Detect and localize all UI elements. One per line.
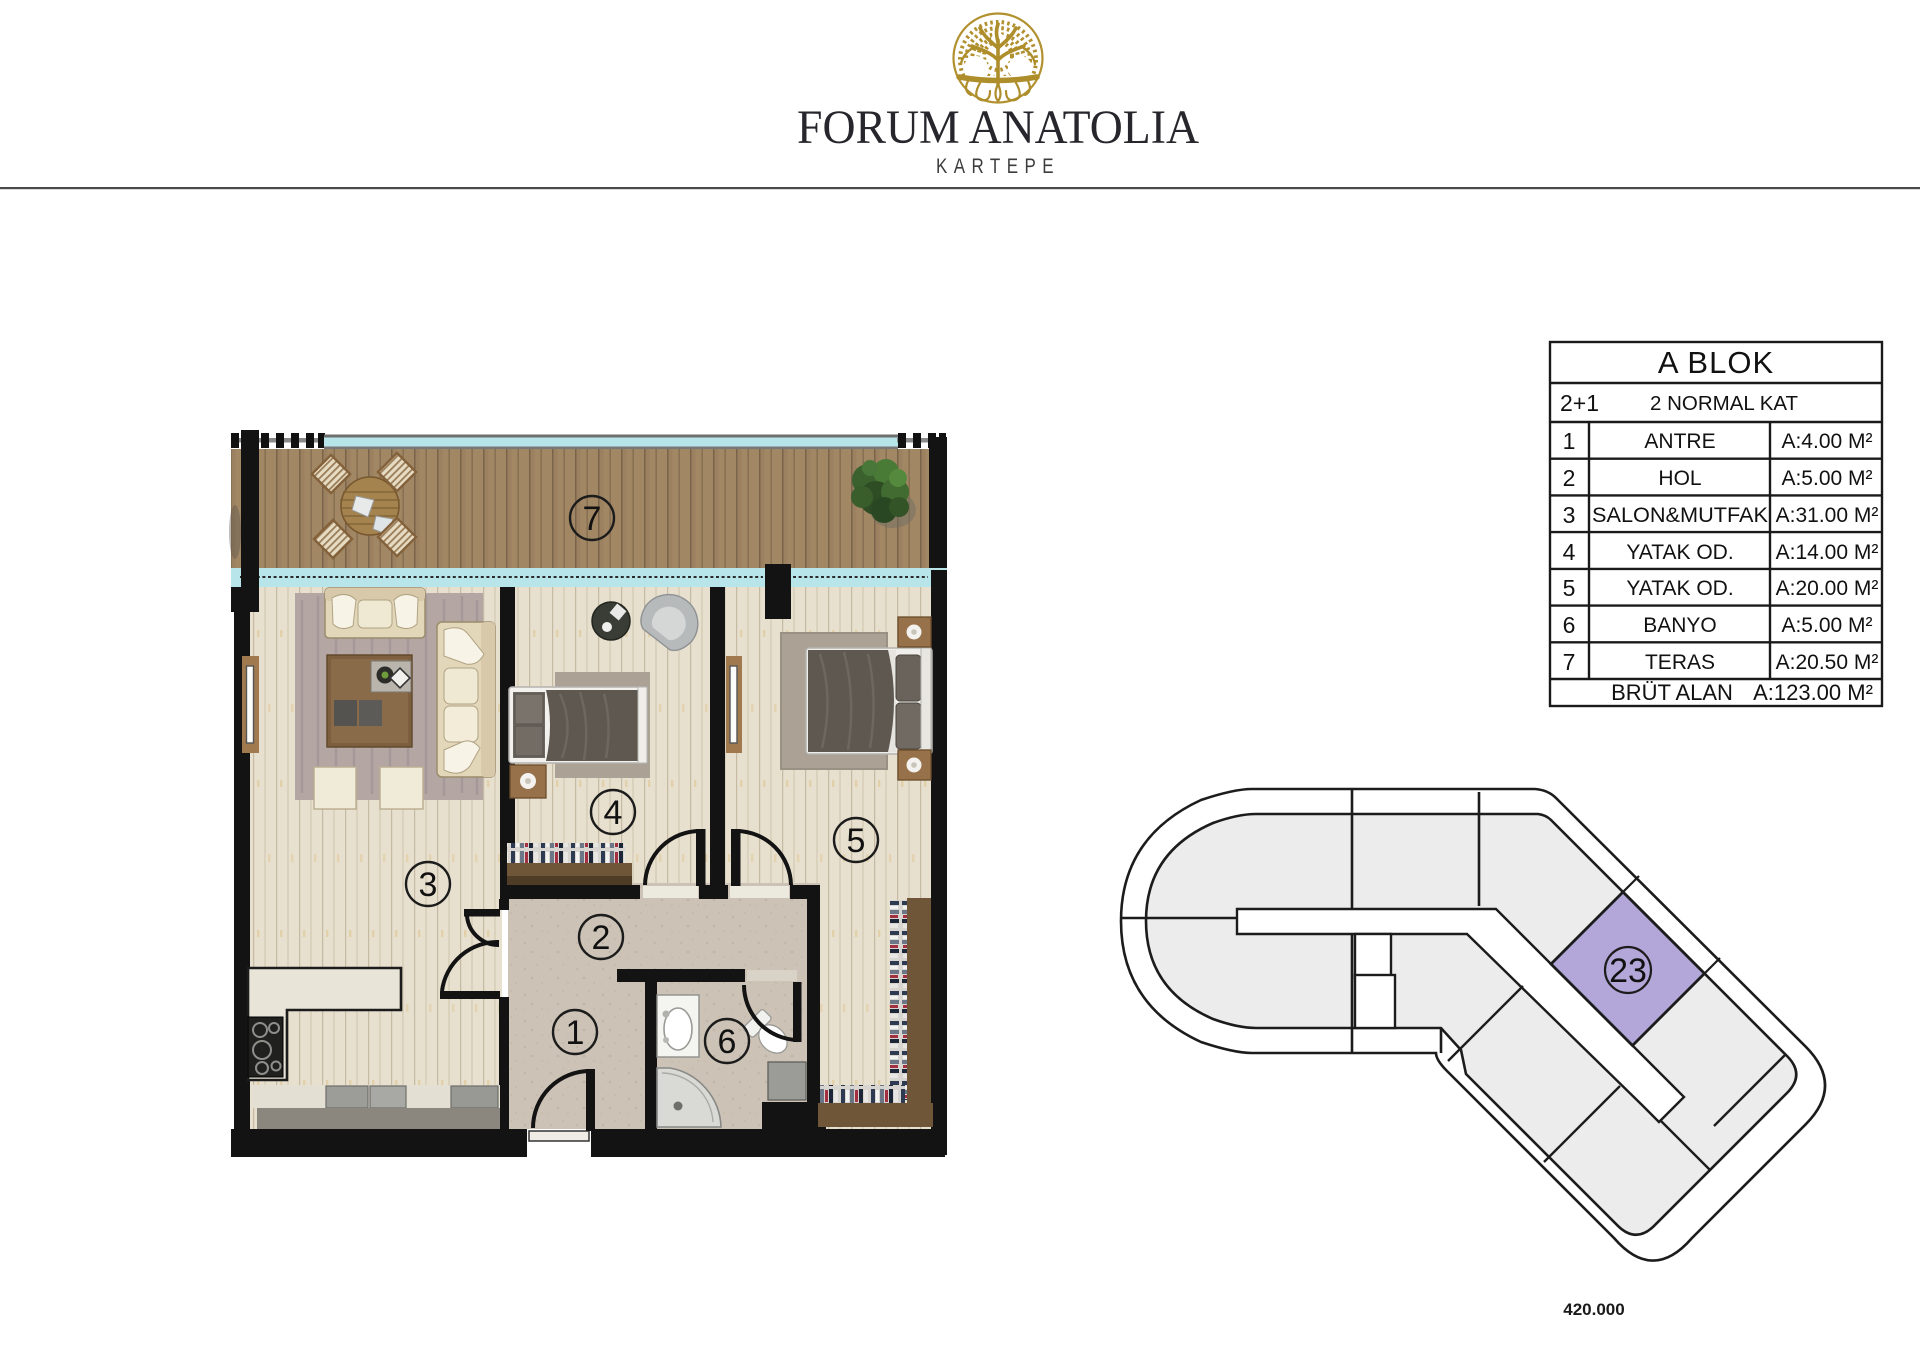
svg-text:TERAS: TERAS	[1645, 651, 1715, 674]
svg-text:5: 5	[847, 822, 866, 860]
svg-text:2: 2	[592, 919, 611, 957]
svg-text:23: 23	[1609, 952, 1647, 990]
svg-text:3: 3	[419, 866, 438, 904]
svg-text:420.000: 420.000	[1563, 1300, 1624, 1319]
svg-text:YATAK OD.: YATAK OD.	[1626, 541, 1733, 564]
svg-text:BRÜT ALAN: BRÜT ALAN	[1611, 680, 1733, 705]
svg-text:A:4.00 M²: A:4.00 M²	[1781, 430, 1872, 453]
svg-text:5: 5	[1563, 575, 1576, 601]
svg-text:A:20.50 M²: A:20.50 M²	[1776, 651, 1879, 674]
svg-text:YATAK OD.: YATAK OD.	[1626, 577, 1733, 600]
svg-text:A:5.00 M²: A:5.00 M²	[1781, 614, 1872, 637]
svg-text:A:5.00 M²: A:5.00 M²	[1781, 467, 1872, 490]
svg-text:FORUM ANATOLIA: FORUM ANATOLIA	[797, 101, 1199, 154]
svg-text:SALON&MUTFAK: SALON&MUTFAK	[1592, 504, 1768, 527]
svg-text:6: 6	[1563, 612, 1576, 638]
svg-text:2 NORMAL KAT: 2 NORMAL KAT	[1650, 392, 1799, 415]
svg-text:2: 2	[1563, 465, 1576, 491]
svg-text:1: 1	[1563, 428, 1576, 454]
svg-text:HOL: HOL	[1658, 467, 1701, 490]
svg-text:3: 3	[1563, 502, 1576, 528]
svg-text:4: 4	[604, 794, 623, 832]
svg-text:4: 4	[1563, 539, 1576, 565]
svg-text:KARTEPE: KARTEPE	[936, 155, 1060, 178]
svg-text:7: 7	[1563, 649, 1576, 675]
svg-text:A:14.00 M²: A:14.00 M²	[1776, 541, 1879, 564]
svg-text:6: 6	[718, 1023, 737, 1061]
svg-text:A:20.00 M²: A:20.00 M²	[1776, 577, 1879, 600]
svg-text:7: 7	[583, 500, 602, 538]
svg-text:A:31.00 M²: A:31.00 M²	[1776, 504, 1879, 527]
svg-text:2+1: 2+1	[1560, 390, 1599, 416]
svg-text:ANTRE: ANTRE	[1644, 430, 1715, 453]
svg-text:A BLOK: A BLOK	[1658, 345, 1774, 380]
svg-text:A:123.00 M²: A:123.00 M²	[1753, 680, 1873, 705]
svg-text:BANYO: BANYO	[1643, 614, 1717, 637]
svg-text:1: 1	[566, 1014, 585, 1052]
